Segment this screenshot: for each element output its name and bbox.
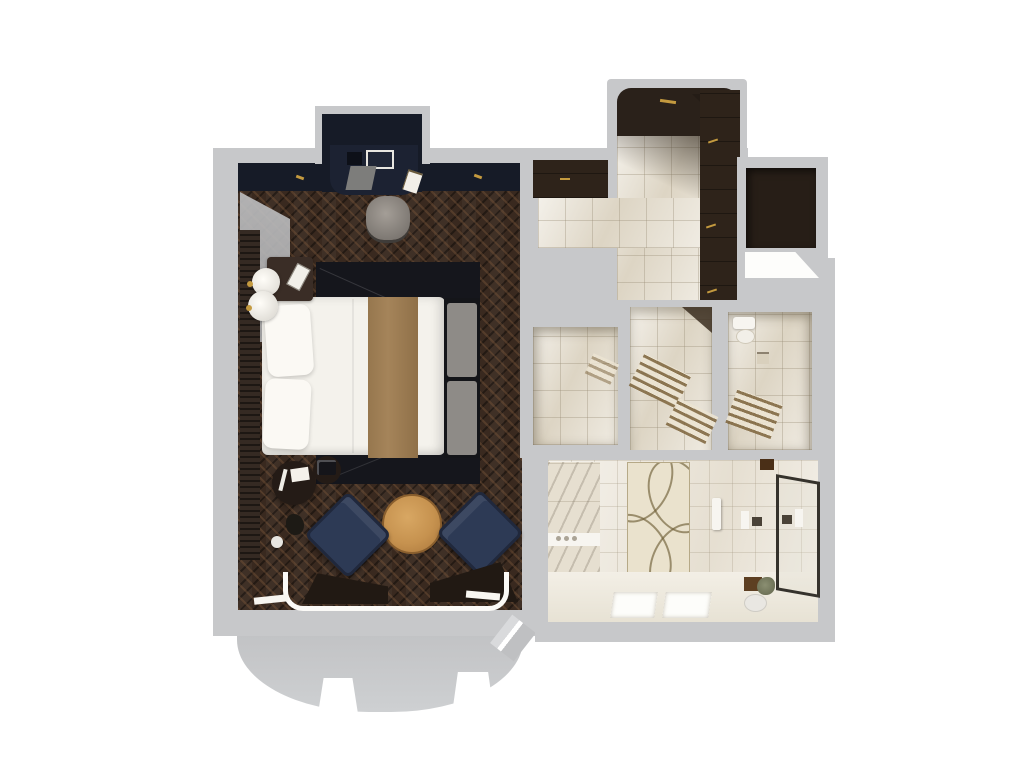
flush-plate-icon <box>757 352 769 364</box>
telephone <box>317 460 336 475</box>
table-lamp-shade <box>248 291 278 321</box>
wardrobe-handle-icon <box>560 178 570 180</box>
toilet-bowl <box>736 329 755 344</box>
desk-folder <box>345 166 376 190</box>
floor-plan-canvas <box>0 0 1024 768</box>
desk-tray <box>347 152 362 165</box>
shower-sconce <box>741 511 749 529</box>
vanity-sink-2 <box>662 592 712 618</box>
bench-cushion <box>447 381 477 455</box>
desk-chair <box>366 196 410 240</box>
sconce-arm-icon <box>247 281 253 287</box>
shower-valve <box>752 517 762 526</box>
sconce-arm-icon <box>246 305 252 311</box>
bench-cushion <box>447 303 477 377</box>
corridor-floor-band <box>538 198 701 248</box>
bay-window-notch <box>452 672 494 714</box>
toilet-tank <box>733 317 755 329</box>
bath-plant <box>757 577 775 595</box>
coffee-table <box>382 494 442 554</box>
bay-window-notch <box>318 678 358 714</box>
bath-left-marble-panel <box>548 462 600 578</box>
bath-door-jamb <box>712 498 721 530</box>
bath-stool <box>744 594 767 612</box>
plant <box>286 514 304 535</box>
vanity-sink-1 <box>610 592 658 618</box>
vase <box>271 536 283 548</box>
tub-control-knob <box>556 536 561 541</box>
tub-control-knob <box>564 536 569 541</box>
bath-rug <box>627 462 690 574</box>
closet-niche <box>746 168 816 248</box>
shower-room <box>533 327 618 445</box>
pillow <box>262 378 312 450</box>
shower-glass <box>776 474 820 598</box>
shower-sconce <box>795 509 803 527</box>
shower-valve <box>782 515 792 524</box>
wardrobe-column <box>700 90 740 310</box>
shower-shelf <box>760 459 774 470</box>
bed-runner <box>368 297 418 458</box>
wardrobe-left <box>533 160 608 198</box>
side-table-round <box>272 461 316 505</box>
document-paper <box>290 467 310 482</box>
tub-control-knob <box>572 536 577 541</box>
duvet-fold-line <box>352 299 354 453</box>
